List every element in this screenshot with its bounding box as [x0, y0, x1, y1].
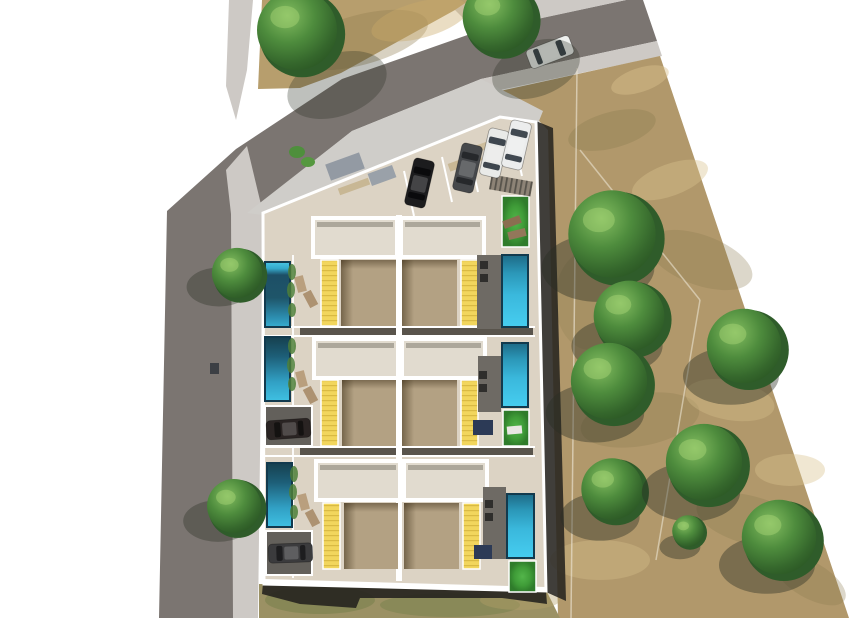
patio-chair — [479, 371, 487, 379]
patio-chair — [485, 500, 493, 508]
terrace-shade — [404, 503, 416, 569]
carport-suv — [266, 418, 311, 440]
roof-parapet-shadow — [406, 343, 481, 348]
pergola-awning — [463, 503, 480, 569]
pergola-awning — [323, 503, 340, 569]
tree-highlight — [270, 6, 299, 28]
swimming-pool — [502, 255, 528, 327]
alley-path — [300, 328, 533, 335]
roof-parapet-shadow — [320, 465, 396, 470]
tree — [594, 281, 665, 352]
lawn-patch — [509, 561, 536, 592]
pool-plant — [287, 357, 295, 373]
pool-plant — [290, 505, 298, 519]
pergola-awning — [321, 260, 338, 326]
terrace-shade — [344, 503, 356, 569]
terrace-shade — [402, 260, 414, 326]
waste-bin — [210, 363, 219, 374]
tree-highlight — [677, 521, 689, 530]
storage-box — [473, 420, 493, 435]
roof-parapet-shadow — [405, 222, 480, 227]
alley-path — [300, 448, 533, 455]
carport-suv — [268, 543, 313, 564]
patio-chair — [480, 261, 488, 269]
terrace-shade — [342, 380, 354, 446]
tree-highlight — [220, 258, 238, 272]
pool-plant — [288, 303, 296, 317]
swimming-pool — [507, 494, 534, 558]
swimming-pool — [265, 262, 290, 327]
terrace-shade — [341, 260, 396, 269]
shrub — [301, 157, 315, 167]
pool-plant — [288, 377, 296, 391]
terrace-shade — [402, 380, 457, 389]
pergola-awning — [461, 380, 478, 446]
sun-lounger — [507, 425, 523, 434]
terrace-shade — [402, 260, 457, 269]
patio-chair — [479, 384, 487, 392]
pool-plant — [289, 484, 297, 500]
tree — [707, 309, 781, 383]
roof-parapet-shadow — [317, 222, 393, 227]
pool-plant — [287, 282, 295, 298]
sidewalk-top-left — [226, 0, 253, 120]
pergola-awning — [461, 260, 478, 326]
tree-highlight — [583, 208, 615, 232]
aerial-site-render — [0, 0, 850, 620]
tree-highlight — [592, 471, 614, 488]
terrace-shade — [341, 260, 353, 326]
tree — [672, 515, 704, 547]
swimming-pool — [265, 337, 290, 401]
pool-plant — [288, 338, 296, 354]
roof-parapet-shadow — [318, 343, 394, 348]
roof-parapet-shadow — [408, 465, 483, 470]
storage-box — [474, 545, 492, 559]
patio-chair — [485, 513, 493, 521]
swimming-pool — [502, 343, 528, 407]
pergola-awning — [321, 380, 338, 446]
terrace-shade — [344, 503, 398, 512]
tree-highlight — [216, 490, 236, 505]
pool-plant — [290, 466, 298, 482]
tree — [212, 248, 262, 298]
pool-plant — [288, 264, 296, 280]
tree-highlight — [719, 324, 746, 345]
tree — [581, 458, 642, 519]
tree — [207, 479, 261, 533]
tree — [666, 424, 742, 500]
tree-highlight — [754, 515, 781, 536]
terrace-shade — [404, 503, 459, 512]
terrace-shade — [342, 380, 396, 389]
tree — [571, 343, 647, 419]
patio-chair — [480, 274, 488, 282]
tree-highlight — [584, 358, 612, 379]
tree-highlight — [679, 439, 707, 460]
site-plan-canvas — [0, 0, 850, 620]
tree — [742, 500, 816, 574]
terrace-shade — [402, 380, 414, 446]
shrub — [289, 146, 305, 158]
dirt-highlight — [755, 454, 825, 486]
tree — [568, 190, 655, 277]
tree-highlight — [605, 295, 631, 315]
swimming-pool — [267, 463, 292, 527]
